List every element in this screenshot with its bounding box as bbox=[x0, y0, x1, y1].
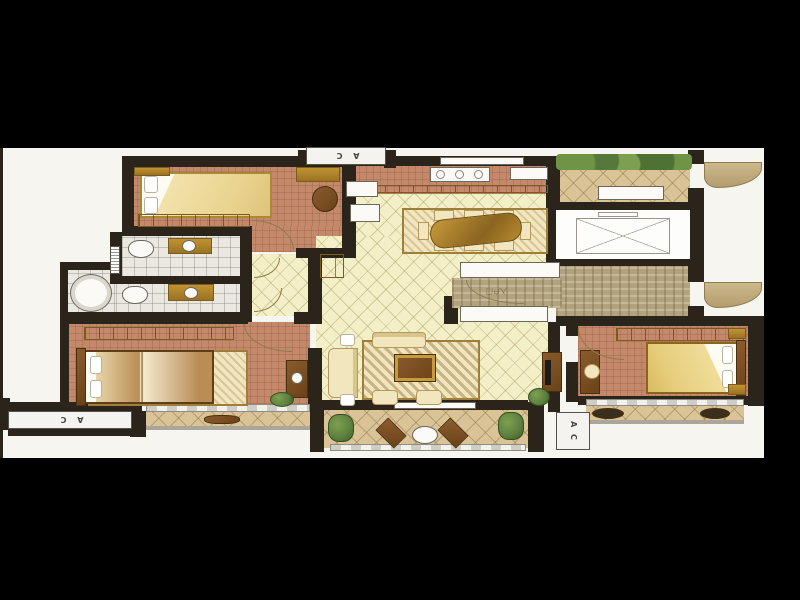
wall-master-left bbox=[60, 322, 69, 410]
room-entry-hall bbox=[556, 266, 690, 318]
sink-upper bbox=[182, 240, 196, 252]
wall-bath-right bbox=[240, 234, 252, 322]
wall-east-outer-mid bbox=[688, 188, 704, 282]
dresser-mirror bbox=[291, 372, 303, 384]
balcony-table bbox=[412, 426, 438, 444]
master-pillow bbox=[90, 356, 102, 374]
bed-pillow bbox=[144, 197, 158, 214]
wall-bedroom-right-east bbox=[748, 316, 764, 406]
garden-bench bbox=[598, 186, 664, 200]
side-table bbox=[340, 334, 355, 346]
dining-chair bbox=[418, 222, 429, 240]
round-bathtub bbox=[70, 274, 112, 312]
kitchen-cabinet bbox=[350, 204, 380, 222]
hall-cabinet bbox=[320, 254, 344, 278]
master-bay-rail bbox=[146, 426, 310, 430]
stove-burner bbox=[474, 170, 483, 179]
wall-ext-right-stub bbox=[342, 226, 356, 258]
round-chair bbox=[312, 186, 338, 212]
armchair-bottom bbox=[416, 390, 442, 405]
wardrobe-master bbox=[84, 327, 234, 340]
bedroom-right-bay-rail bbox=[586, 420, 744, 424]
wall-bedroom-right-west bbox=[566, 326, 578, 336]
balcony-plant-left bbox=[328, 414, 354, 442]
tv bbox=[545, 360, 551, 385]
entry-door-label: 入户门 bbox=[486, 286, 507, 296]
stove-burner bbox=[455, 170, 464, 179]
toilet-lower bbox=[122, 286, 148, 304]
ac-left-label: A C bbox=[57, 416, 84, 425]
wall-bath-divider bbox=[110, 276, 244, 284]
ac-top-label: A C bbox=[333, 152, 360, 161]
shelf-top-left bbox=[134, 167, 170, 176]
sink-counter bbox=[510, 167, 548, 180]
console-table bbox=[296, 167, 340, 182]
master-pillow bbox=[90, 380, 102, 398]
wall-elevator-hall bbox=[552, 258, 694, 266]
kitchen-window bbox=[440, 157, 524, 165]
shaft-box-top bbox=[460, 262, 560, 278]
wall-master-top bbox=[60, 312, 248, 324]
wall-balcony-right bbox=[528, 402, 544, 452]
elevator-car bbox=[576, 218, 670, 254]
armchair-bottom bbox=[372, 390, 398, 405]
desk-chair bbox=[584, 364, 600, 379]
shaft-box-bottom bbox=[460, 306, 548, 322]
garden-greenery bbox=[556, 154, 692, 170]
right-pillow bbox=[722, 346, 733, 364]
wardrobe-top-left bbox=[138, 214, 250, 227]
bay-bowl bbox=[700, 408, 730, 419]
ac-platform-right: A C bbox=[556, 412, 590, 450]
balcony-plant-right bbox=[498, 412, 524, 440]
ac-platform-left: A C bbox=[8, 411, 132, 429]
nightstand-right bbox=[728, 384, 746, 395]
bay-tray bbox=[204, 415, 240, 424]
loveseat-top bbox=[372, 332, 426, 348]
master-headboard bbox=[76, 348, 86, 406]
ac-platform-top: A C bbox=[306, 147, 386, 165]
single-bed-top-left bbox=[140, 172, 272, 218]
wall-ac-left-bottom bbox=[8, 429, 134, 436]
sofa-main bbox=[328, 348, 358, 398]
bed-pillow bbox=[144, 176, 158, 193]
sink-lower bbox=[184, 287, 198, 299]
wall-east-outer-bot-stub bbox=[688, 306, 704, 320]
nightstand-right bbox=[728, 328, 746, 339]
floor-plan-image: A C A C A C bbox=[0, 0, 800, 600]
ac-right-label: A C bbox=[568, 421, 577, 442]
side-table bbox=[340, 394, 355, 406]
living-plant bbox=[528, 388, 550, 406]
stove-burner bbox=[436, 170, 445, 179]
bathroom-louver-window bbox=[110, 246, 120, 274]
kitchen-counter bbox=[356, 185, 548, 193]
balcony-railing bbox=[330, 444, 526, 451]
master-plant bbox=[270, 392, 294, 407]
bedroom-right-bay-window bbox=[586, 399, 744, 406]
elevator-door bbox=[598, 212, 638, 217]
toilet-upper bbox=[128, 240, 154, 258]
fridge bbox=[346, 181, 378, 197]
bay-bowl bbox=[592, 408, 624, 419]
wall-bedroom-right-west2 bbox=[566, 362, 578, 402]
wall-hall-bedroom-right bbox=[556, 316, 764, 326]
wall-bedroom-left bbox=[122, 156, 134, 236]
coffee-table bbox=[394, 354, 436, 382]
wall-bedroom-bottom-west bbox=[122, 226, 250, 236]
wardrobe-right bbox=[616, 328, 744, 341]
